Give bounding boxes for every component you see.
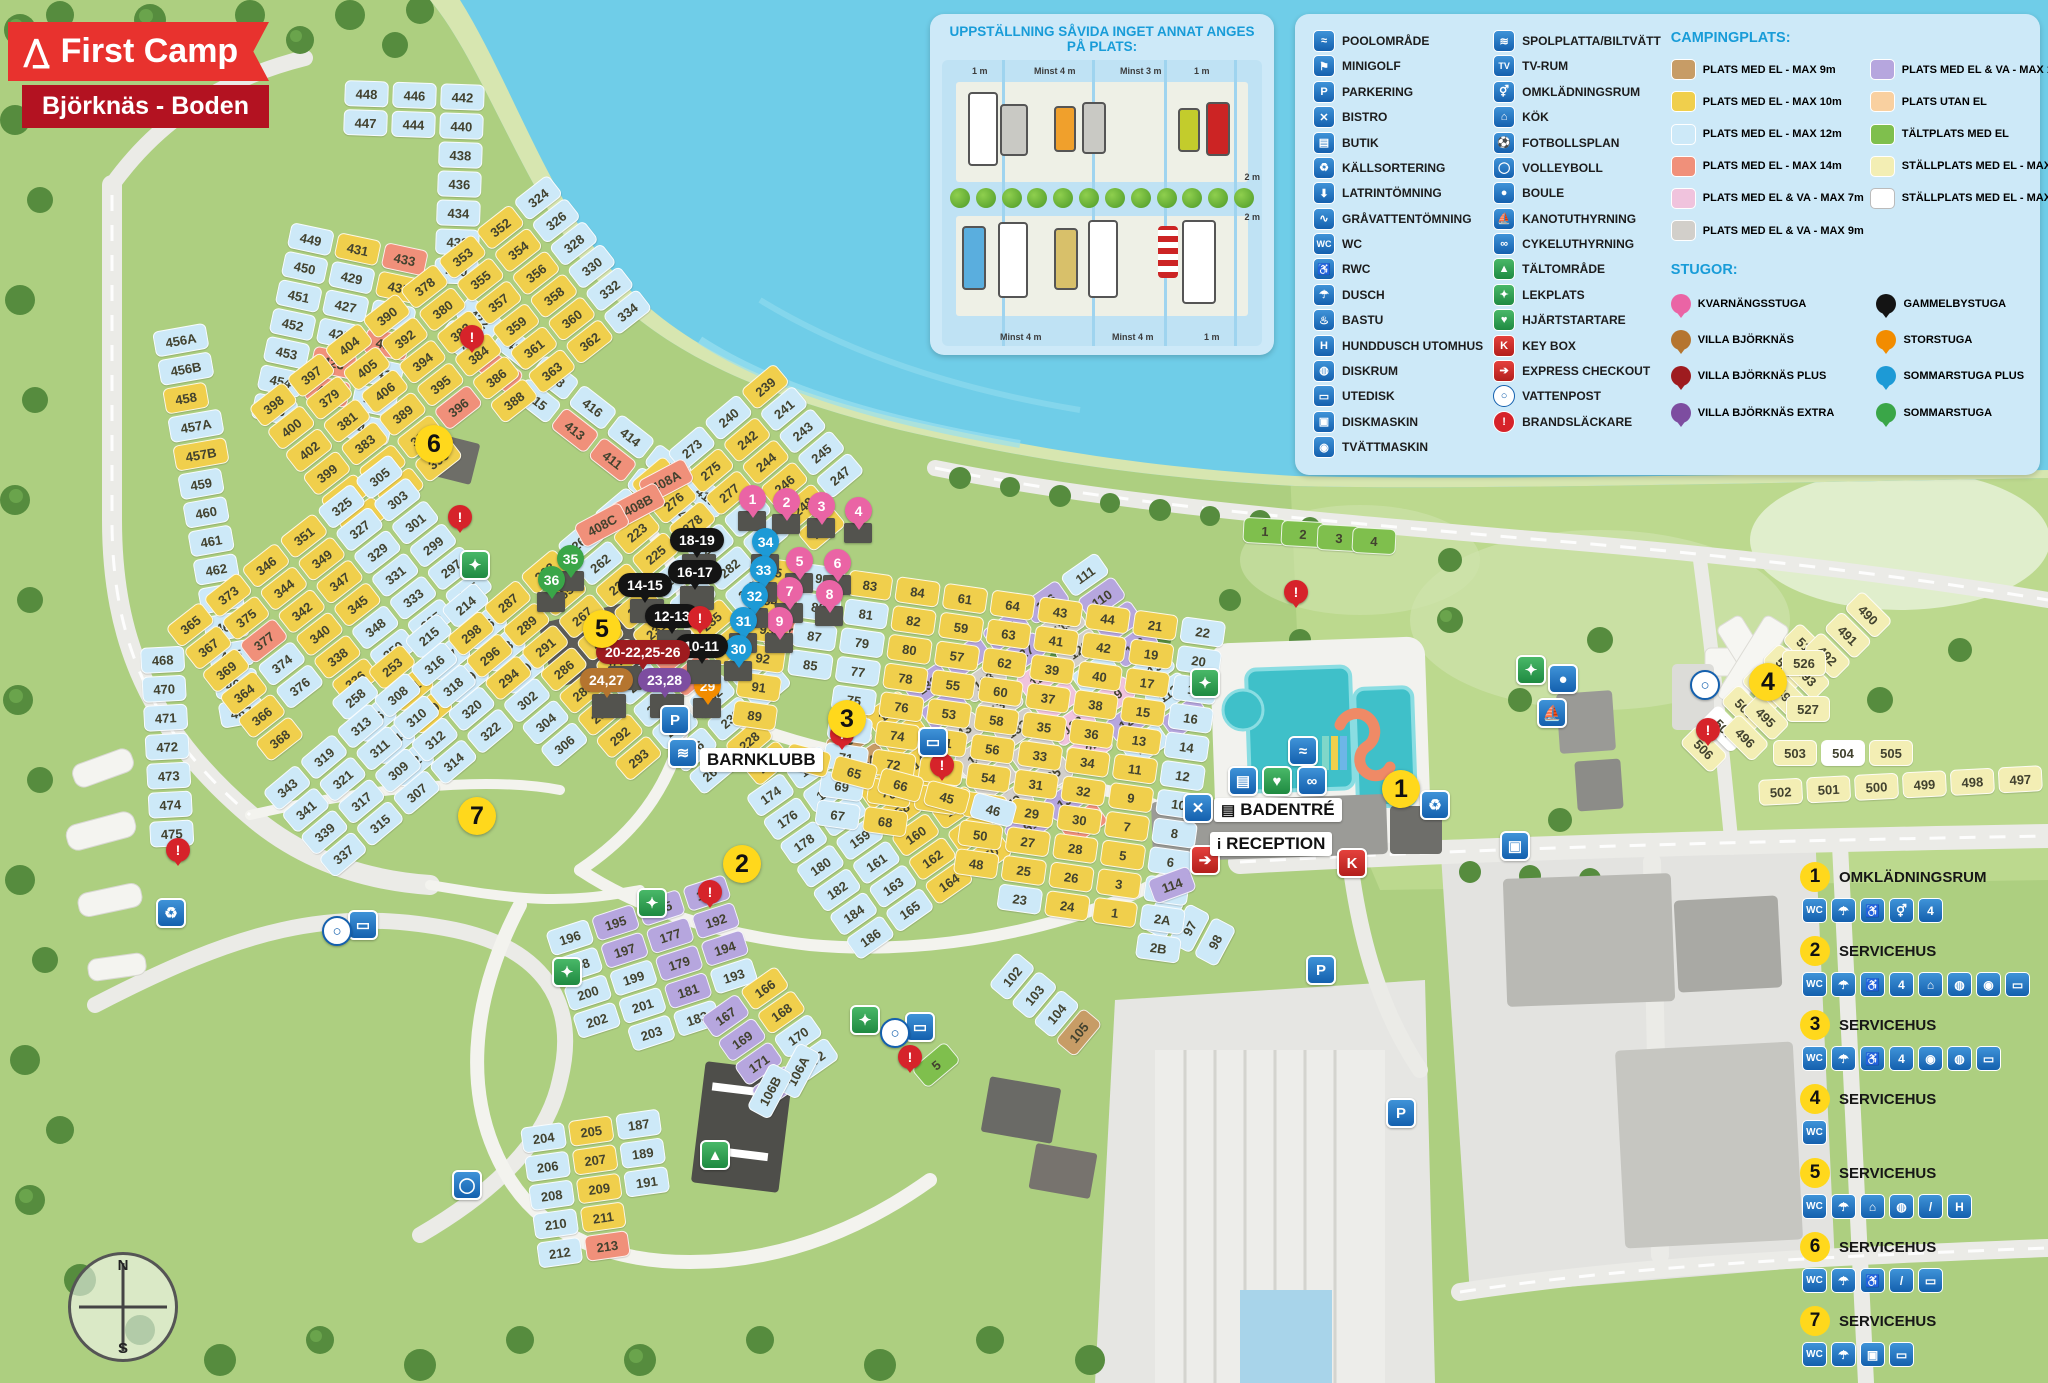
service-title: SERVICEHUS — [1839, 1091, 1936, 1108]
car-beige — [1054, 228, 1078, 290]
fotboll-icon: ⚽ — [1493, 132, 1515, 154]
service-number: 1 — [1800, 862, 1830, 892]
spolplatta-icon: ≋ — [668, 738, 698, 768]
caravan — [968, 92, 998, 166]
legend-item-gravatten: ∿GRÅVATTENTÖMNING — [1313, 208, 1483, 230]
skotrum-icon: 4 — [1889, 1046, 1914, 1071]
service-legend-head: 4SERVICEHUS — [1800, 1084, 2040, 1114]
wc-icon: WC — [1802, 1342, 1827, 1367]
dusch-icon: ☂ — [1831, 1268, 1856, 1293]
plot-color-swatch — [1870, 59, 1895, 80]
car-green — [1178, 108, 1200, 152]
stuga-pin-swatch — [1671, 330, 1691, 350]
legend-item-butik: ▤BUTIK — [1313, 132, 1483, 154]
uppstallning-title: UPPSTÄLLNING SÅVIDA INGET ANNAT ANGES PÅ… — [942, 24, 1262, 54]
reception-label: iRECEPTION — [1210, 832, 1332, 856]
plot-chip: 474 — [148, 790, 193, 818]
legend-label: EXPRESS CHECKOUT — [1522, 364, 1650, 378]
stuga-range-pill: 23,28 — [638, 668, 691, 692]
legend-item-keybox: KKEY BOX — [1493, 335, 1661, 357]
legend-label: VOLLEYBOLL — [1522, 161, 1603, 175]
legend-item-pool: ≈POOLOMRÅDE — [1313, 30, 1483, 52]
service-marker: 6 — [415, 425, 453, 463]
legend-label: HUNDDUSCH UTOMHUS — [1342, 339, 1483, 353]
campingplats-item: PLATS MED EL - MAX 10m — [1671, 87, 1864, 116]
legend-item-volleyboll: ◯VOLLEYBOLL — [1493, 157, 1661, 179]
legend-label: KÄLLSORTERING — [1342, 161, 1445, 175]
stuga-label: SOMMARSTUGA PLUS — [1903, 370, 2024, 382]
kallsortering-icon: ♻ — [156, 898, 186, 928]
lekplats-icon: ✦ — [637, 888, 667, 918]
striped-screen — [1158, 226, 1178, 278]
car-blue — [962, 226, 986, 290]
stuga-pin: 6 — [824, 549, 851, 576]
service-legend-head: 1OMKLÄDNINGSRUM — [1800, 862, 2040, 892]
stuga-label: KVARNÄNGSSTUGA — [1698, 298, 1807, 310]
service-marker: 4 — [1749, 663, 1787, 701]
utedisk-icon: ▭ — [2005, 972, 2030, 997]
stuga-pin: 5 — [786, 547, 813, 574]
legend-label: BUTIK — [1342, 136, 1379, 150]
stuga-pin-swatch — [1876, 294, 1896, 314]
stuga-item: SOMMARSTUGA PLUS — [1876, 360, 2048, 393]
legend-item-latrintomning: ⬇LATRINTÖMNING — [1313, 182, 1483, 204]
stuga-pin-swatch — [1876, 403, 1896, 423]
taltomrade-icon: ▲ — [1493, 258, 1515, 280]
utedisk-icon: ▭ — [905, 1012, 935, 1042]
bistro-icon: ✕ — [1183, 793, 1213, 823]
legend-label: KEY BOX — [1522, 339, 1576, 353]
brandslackare-pin: ! — [698, 880, 722, 904]
wc-icon: WC — [1802, 1268, 1827, 1293]
legend-label: BASTU — [1342, 313, 1383, 327]
kallsortering-icon: ♻ — [1420, 790, 1450, 820]
service-icon-row: WC — [1802, 1120, 2040, 1145]
plot-color-swatch — [1870, 188, 1895, 209]
plot-chip: 505 — [1869, 740, 1913, 766]
legend-item-boule: ●BOULE — [1493, 182, 1661, 204]
diskmaskin-icon: ▣ — [1500, 831, 1530, 861]
utedisk-icon: ▭ — [1313, 385, 1335, 407]
legend-item-bistro: ✕BISTRO — [1313, 106, 1483, 128]
utedisk-icon: ▭ — [1889, 1342, 1914, 1367]
motorhome — [1182, 220, 1216, 304]
legend-campingplats-stugor: CAMPINGPLATS:PLATS MED EL - MAX 9mPLATS … — [1671, 30, 2048, 465]
diskrum-icon: ◍ — [1313, 360, 1335, 382]
tvattmaskin-icon: ◉ — [1313, 436, 1335, 458]
stuga-item: VILLA BJÖRKNÄS EXTRA — [1671, 396, 1871, 429]
lekplats-icon: ✦ — [552, 957, 582, 987]
service-marker: 5 — [583, 610, 621, 648]
utedisk-icon: ▭ — [1976, 1046, 2001, 1071]
rwc-icon: ♿ — [1860, 972, 1885, 997]
kok-icon: ⌂ — [1918, 972, 1943, 997]
legend-label: BRANDSLÄCKARE — [1522, 415, 1632, 429]
tv-icon: TV — [1493, 55, 1515, 77]
butik-icon: ▤ — [1228, 766, 1258, 796]
plot-color-swatch — [1671, 156, 1696, 177]
legend-item-tv: TVTV-RUM — [1493, 55, 1661, 77]
bastu-icon: ♨ — [1313, 309, 1335, 331]
stugor-columns: KVARNÄNGSSTUGAVILLA BJÖRKNÄSVILLA BJÖRKN… — [1671, 288, 2048, 430]
legend-facilities-col2: ≋SPOLPLATTA/BILTVÄTTTVTV-RUM⚥OMKLÄDNINGS… — [1493, 30, 1661, 465]
campingplats-item: STÄLLPLATS MED EL - MAX 10m — [1870, 152, 2048, 181]
spolplatta-icon: ≋ — [1493, 30, 1515, 52]
service-marker: 1 — [1382, 770, 1420, 808]
compass: N S — [68, 1252, 178, 1362]
car-orange — [1054, 106, 1076, 152]
diskrum-icon: ◍ — [1947, 1046, 1972, 1071]
plot-color-swatch — [1671, 91, 1696, 112]
campingplats-label: PLATS MED EL - MAX 9m — [1703, 64, 1836, 76]
legend-item-brandslackare: !BRANDSLÄCKARE — [1493, 411, 1661, 433]
service-number: 5 — [1800, 1158, 1830, 1188]
campingplats-item: PLATS MED EL - MAX 14m — [1671, 152, 1864, 181]
uppstallning-diagram: 1 m Minst 4 m Minst 3 m 1 m 2 m 2 m Mins… — [942, 60, 1262, 346]
car-gray — [1082, 102, 1106, 154]
brandslackare-icon: ! — [1493, 411, 1515, 433]
parkering-icon: P — [660, 705, 690, 735]
stad-icon: / — [1918, 1194, 1943, 1219]
omkladningsrum-icon: ⚥ — [1889, 898, 1914, 923]
stuga-item: SOMMARSTUGA — [1876, 396, 2048, 429]
plot-chip: 440 — [439, 112, 484, 140]
kanot-icon: ⛵ — [1493, 208, 1515, 230]
stuga-pin: 4 — [845, 497, 872, 524]
plot-chip: 473 — [146, 762, 191, 790]
legend-label: TVÄTTMASKIN — [1342, 440, 1428, 454]
awning — [1000, 104, 1028, 156]
vattenpost-icon: ○ — [322, 916, 352, 946]
legend-label: BISTRO — [1342, 110, 1387, 124]
legend-label: UTEDISK — [1342, 389, 1395, 403]
wc-icon: WC — [1802, 898, 1827, 923]
stuga-pin: 34 — [752, 528, 779, 555]
legend-item-cykel: ∞CYKELUTHYRNING — [1493, 233, 1661, 255]
stuga-pin: 31 — [730, 607, 757, 634]
diskmaskin-icon: ▣ — [1860, 1342, 1885, 1367]
service-number: 6 — [1800, 1232, 1830, 1262]
plot-chip: 468 — [140, 646, 185, 674]
legend-item-express: ➔EXPRESS CHECKOUT — [1493, 360, 1661, 382]
barnklubb-label: BARNKLUBB — [700, 748, 823, 772]
campingplats-item: STÄLLPLATS MED EL - MAX 12m — [1870, 184, 2048, 213]
plot-chip: 471 — [143, 704, 188, 732]
express-icon: ➔ — [1493, 360, 1515, 382]
stuga-label: SOMMARSTUGA — [1903, 407, 1992, 419]
lekplats-icon: ✦ — [1190, 668, 1220, 698]
stuga-item: VILLA BJÖRKNÄS — [1671, 324, 1871, 357]
service-icon-row: WC☂♿4◉◍▭ — [1802, 1046, 2040, 1071]
stuga-pin: 36 — [538, 566, 565, 593]
plot-chip: 500 — [1854, 773, 1899, 801]
stuga-pin-swatch — [1876, 366, 1896, 386]
campingplats-label: PLATS MED EL & VA - MAX 11m — [1902, 64, 2048, 76]
stuga-pin: 8 — [816, 580, 843, 607]
brandslackare-pin: ! — [460, 325, 484, 349]
stuga-pin: 33 — [750, 556, 777, 583]
stuga-range-pill: 24,27 — [580, 668, 633, 692]
stuga-label: GAMMELBYSTUGA — [1903, 298, 2006, 310]
firstcamp-tent-icon: ⋀̲ — [24, 37, 49, 67]
legend-label: DISKRUM — [1342, 364, 1398, 378]
stuga-pin-swatch — [1671, 294, 1691, 314]
skotrum-icon: 4 — [1889, 972, 1914, 997]
service-legend-head: 3SERVICEHUS — [1800, 1010, 2040, 1040]
legend-item-rwc: ♿RWC — [1313, 258, 1483, 280]
campingplats-item: PLATS MED EL & VA - MAX 7m — [1671, 184, 1864, 213]
legend-item-omkladningsrum: ⚥OMKLÄDNINGSRUM — [1493, 81, 1661, 103]
rwc-icon: ♿ — [1313, 258, 1335, 280]
service-legend-item: 7SERVICEHUSWC☂▣▭ — [1800, 1306, 2040, 1367]
dusch-icon: ☂ — [1313, 284, 1335, 306]
legend-item-wc: WCWC — [1313, 233, 1483, 255]
tvattmaskin-icon: ◉ — [1976, 972, 2001, 997]
utedisk-icon: ▭ — [348, 910, 378, 940]
service-title: SERVICEHUS — [1839, 943, 1936, 960]
legend-label: VATTENPOST — [1522, 389, 1601, 403]
kok-icon: ⌂ — [1493, 106, 1515, 128]
vattenpost-icon: ○ — [1493, 385, 1515, 407]
legend-label: WC — [1342, 237, 1362, 251]
legend-item-parkering: PPARKERING — [1313, 81, 1483, 103]
service-legend-head: 6SERVICEHUS — [1800, 1232, 2040, 1262]
stuga-pin: 9 — [766, 607, 793, 634]
stuga-label: STORSTUGA — [1903, 334, 1972, 346]
plot-chip: 436 — [437, 170, 482, 198]
brand-name: First Camp — [61, 32, 239, 71]
dusch-icon: ☂ — [1831, 972, 1856, 997]
legend-item-kok: ⌂KÖK — [1493, 106, 1661, 128]
rwc-icon: ♿ — [1860, 1268, 1885, 1293]
legend-label: TÄLTOMRÅDE — [1522, 262, 1605, 276]
campingplats-item: PLATS MED EL & VA - MAX 9m — [1671, 216, 1864, 245]
parkering-icon: P — [1313, 81, 1335, 103]
service-title: SERVICEHUS — [1839, 1239, 1936, 1256]
campingplats-label: PLATS UTAN EL — [1902, 96, 1987, 108]
utedisk-icon: ▭ — [918, 727, 948, 757]
campingplats-item: PLATS MED EL - MAX 9m — [1671, 55, 1864, 84]
stugor-title: STUGOR: — [1671, 262, 2048, 278]
service-icon-row: WC☂♿/▭ — [1802, 1268, 2040, 1293]
legend-label: CYKELUTHYRNING — [1522, 237, 1634, 251]
service-icon-row: WC☂▣▭ — [1802, 1342, 2040, 1367]
stuga-pin-swatch — [1671, 403, 1691, 423]
caravan-2 — [998, 222, 1028, 298]
legend-item-utedisk: ▭UTEDISK — [1313, 385, 1483, 407]
legend-item-hunddusch: HHUNDDUSCH UTOMHUS — [1313, 335, 1483, 357]
legend-item-diskrum: ◍DISKRUM — [1313, 360, 1483, 382]
vattenpost-icon: ○ — [1690, 670, 1720, 700]
plot-chip: 526 — [1782, 650, 1826, 676]
service-title: SERVICEHUS — [1839, 1313, 1936, 1330]
plot-chip: 444 — [391, 111, 436, 139]
campingplats-label: PLATS MED EL - MAX 12m — [1703, 128, 1842, 140]
dusch-icon: ☂ — [1831, 1342, 1856, 1367]
service-legend-item: 4SERVICEHUSWC — [1800, 1084, 2040, 1145]
plot-chip: 442 — [440, 83, 485, 111]
service-legend-item: 2SERVICEHUSWC☂♿4⌂◍◉▭ — [1800, 936, 2040, 997]
campingplats-title: CAMPINGPLATS: — [1671, 30, 2048, 46]
campground-map: 4484474464444424404384364344324304494504… — [0, 0, 2048, 1383]
wc-icon: WC — [1802, 1046, 1827, 1071]
stuga-range-pill: 14-15 — [618, 573, 672, 597]
plot-chip: 447 — [343, 109, 388, 137]
stuga-range-pill: 18-19 — [670, 528, 724, 552]
dusch-icon: ☂ — [1831, 898, 1856, 923]
dusch-icon: ☂ — [1831, 1046, 1856, 1071]
plot-chip: 504 — [1821, 740, 1865, 766]
plot-color-swatch — [1870, 91, 1895, 112]
parkering-icon: P — [1306, 955, 1336, 985]
car-red — [1206, 102, 1230, 156]
legend-item-kallsortering: ♻KÄLLSORTERING — [1313, 157, 1483, 179]
minigolf-icon: ⚑ — [1313, 55, 1335, 77]
keybox-icon: K — [1337, 848, 1367, 878]
service-legend-head: 2SERVICEHUS — [1800, 936, 2040, 966]
utedisk-icon: ▭ — [1918, 1268, 1943, 1293]
stuga-pin: 7 — [776, 577, 803, 604]
plot-chip: 470 — [142, 675, 187, 703]
dusch-icon: ☂ — [1831, 1194, 1856, 1219]
service-icon-row: WC☂♿⚥4 — [1802, 898, 2040, 923]
taltomrade-icon: ▲ — [700, 1140, 730, 1170]
service-marker: 7 — [458, 797, 496, 835]
brandslackare-pin: ! — [688, 606, 712, 630]
diskrum-icon: ◍ — [1947, 972, 1972, 997]
rwc-icon: ♿ — [1860, 1046, 1885, 1071]
legend-label: KÖK — [1522, 110, 1549, 124]
stuga-pin: 1 — [739, 485, 766, 512]
lekplats-icon: ✦ — [1493, 284, 1515, 306]
skotrum-icon: 4 — [1918, 898, 1943, 923]
butik-icon: ▤ — [1313, 132, 1335, 154]
hunddusch-icon: H — [1947, 1194, 1972, 1219]
campingplats-label: STÄLLPLATS MED EL - MAX 12m — [1902, 192, 2048, 204]
stuga-pin-swatch — [1671, 366, 1691, 386]
legend-item-taltomrade: ▲TÄLTOMRÅDE — [1493, 258, 1661, 280]
stuga-pin-swatch — [1876, 330, 1896, 350]
service-legend-head: 7SERVICEHUS — [1800, 1306, 2040, 1336]
plot-chip: 499 — [1902, 770, 1947, 798]
campingplats-label: TÄLTPLATS MED EL — [1902, 128, 2009, 140]
legend-item-dusch: ☂DUSCH — [1313, 284, 1483, 306]
service-icon-row: WC☂♿4⌂◍◉▭ — [1802, 972, 2040, 997]
bistro-icon: ✕ — [1313, 106, 1335, 128]
legend-label: FOTBOLLSPLAN — [1522, 136, 1619, 150]
omkladningsrum-icon: ⚥ — [1493, 81, 1515, 103]
campingplats-item: PLATS UTAN EL — [1870, 87, 2048, 116]
legend-label: MINIGOLF — [1342, 59, 1401, 73]
legend-label: TV-RUM — [1522, 59, 1568, 73]
plot-chip: 527 — [1786, 696, 1830, 722]
campingplats-label: PLATS MED EL & VA - MAX 9m — [1703, 225, 1864, 237]
gravatten-icon: ∿ — [1313, 208, 1335, 230]
stuga-label: VILLA BJÖRKNÄS — [1698, 334, 1794, 346]
hedge-row — [950, 188, 1254, 210]
volleyboll-icon: ◯ — [1493, 157, 1515, 179]
legend-label: SPOLPLATTA/BILTVÄTT — [1522, 34, 1661, 48]
plot-color-swatch — [1671, 59, 1696, 80]
legend-label: LEKPLATS — [1522, 288, 1584, 302]
vattenpost-icon: ○ — [880, 1018, 910, 1048]
plot-color-swatch — [1870, 156, 1895, 177]
kok-icon: ⌂ — [1860, 1194, 1885, 1219]
volleyboll-icon: ◯ — [452, 1170, 482, 1200]
wc-icon: WC — [1802, 972, 1827, 997]
servicehus-legend: 1OMKLÄDNINGSRUMWC☂♿⚥42SERVICEHUSWC☂♿4⌂◍◉… — [1800, 862, 2040, 1367]
campingplats-label: PLATS MED EL & VA - MAX 7m — [1703, 192, 1864, 204]
legend-item-hjartstartare: ♥HJÄRTSTARTARE — [1493, 309, 1661, 331]
service-legend-item: 5SERVICEHUSWC☂⌂◍/H — [1800, 1158, 2040, 1219]
legend-label: BOULE — [1522, 186, 1564, 200]
stuga-pin: 3 — [808, 492, 835, 519]
hjartstartare-icon: ♥ — [1493, 309, 1515, 331]
service-legend-item: 3SERVICEHUSWC☂♿4◉◍▭ — [1800, 1010, 2040, 1071]
legend-item-bastu: ♨BASTU — [1313, 309, 1483, 331]
legend-item-tvattmaskin: ◉TVÄTTMASKIN — [1313, 436, 1483, 458]
stuga-label: VILLA BJÖRKNÄS PLUS — [1698, 370, 1827, 382]
plot-chip: 4 — [1351, 527, 1396, 555]
legend-item-lekplats: ✦LEKPLATS — [1493, 284, 1661, 306]
campingplats-label: PLATS MED EL - MAX 10m — [1703, 96, 1842, 108]
wc-icon: WC — [1802, 1194, 1827, 1219]
stuga-item: KVARNÄNGSSTUGA — [1671, 288, 1871, 321]
legend-label: KANOTUTHYRNING — [1522, 212, 1636, 226]
plot-chip: 497 — [1998, 765, 2043, 793]
legend-item-vattenpost: ○VATTENPOST — [1493, 385, 1661, 407]
plot-chip: 434 — [436, 199, 481, 227]
boule-icon: ● — [1493, 182, 1515, 204]
boule-icon: ● — [1548, 664, 1578, 694]
stuga-pin: 32 — [741, 582, 768, 609]
service-legend-item: 1OMKLÄDNINGSRUMWC☂♿⚥4 — [1800, 862, 2040, 923]
legend-item-diskmaskin: ▣DISKMASKIN — [1313, 411, 1483, 433]
stuga-item: GAMMELBYSTUGA — [1876, 288, 2048, 321]
badentre-label: ▤BADENTRÉ — [1214, 798, 1342, 822]
stuga-range-pill: 16-17 — [668, 560, 722, 584]
campingplats-col-right: PLATS MED EL & VA - MAX 11mPLATS UTAN EL… — [1870, 55, 2048, 245]
info-icon: i — [1217, 836, 1221, 853]
service-title: OMKLÄDNINGSRUM — [1839, 869, 1987, 886]
stuga-pin: 30 — [725, 635, 752, 662]
plot-color-swatch — [1671, 188, 1696, 209]
caravan-3 — [1088, 220, 1118, 298]
stuga-pin: 2 — [773, 488, 800, 515]
stuga-item: STORSTUGA — [1876, 324, 2048, 357]
legend-label: POOLOMRÅDE — [1342, 34, 1429, 48]
legend-item-spolplatta: ≋SPOLPLATTA/BILTVÄTT — [1493, 30, 1661, 52]
latrintomning-icon: ⬇ — [1313, 182, 1335, 204]
cykel-icon: ∞ — [1493, 233, 1515, 255]
service-number: 7 — [1800, 1306, 1830, 1336]
plot-chip: 448 — [344, 80, 389, 108]
tvattmaskin-icon: ◉ — [1918, 1046, 1943, 1071]
legend-label: OMKLÄDNINGSRUM — [1522, 85, 1640, 99]
diskmaskin-icon: ▣ — [1313, 411, 1335, 433]
badentre-icon: ▤ — [1221, 801, 1235, 819]
plot-color-swatch — [1870, 124, 1895, 145]
stuga-label: VILLA BJÖRKNÄS EXTRA — [1698, 407, 1835, 419]
legend-label: PARKERING — [1342, 85, 1413, 99]
plot-color-swatch — [1671, 220, 1696, 241]
campingplats-item: TÄLTPLATS MED EL — [1870, 120, 2048, 149]
plot-chip: 502 — [1758, 778, 1803, 806]
pool-icon: ≈ — [1288, 736, 1318, 766]
hjartstartare-icon: ♥ — [1262, 766, 1292, 796]
keybox-icon: K — [1493, 335, 1515, 357]
parkering-icon: P — [1386, 1098, 1416, 1128]
